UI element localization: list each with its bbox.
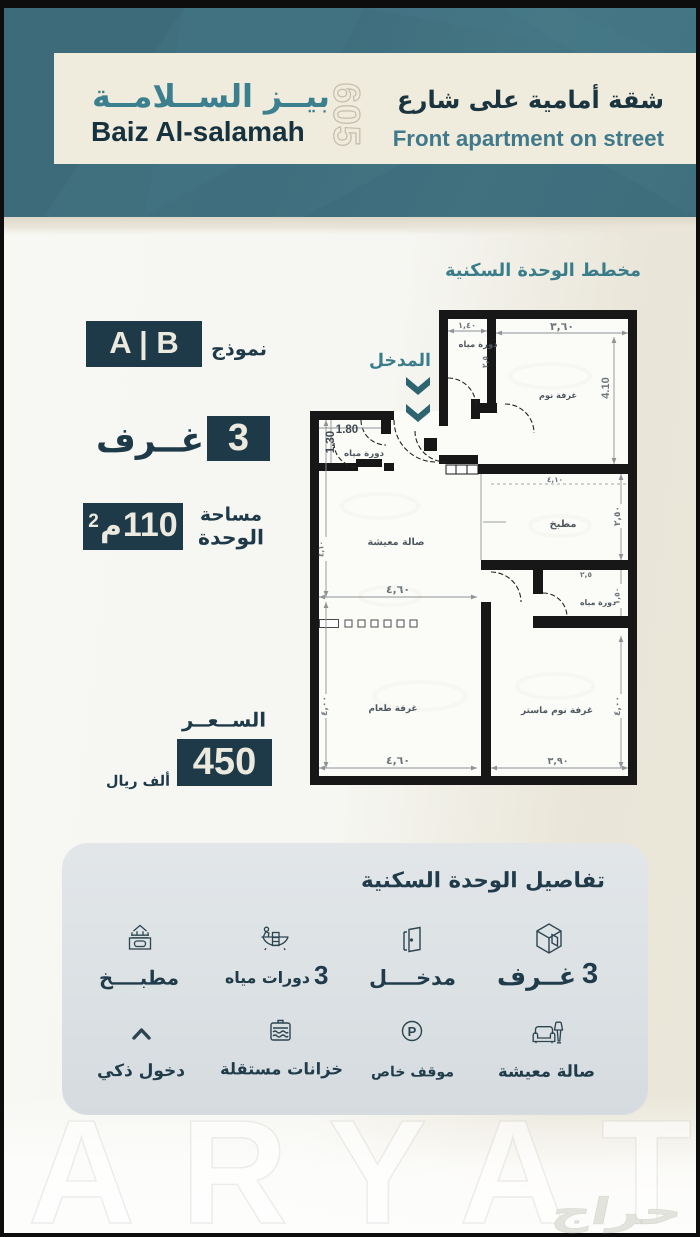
svg-text:P: P [408,1024,417,1039]
